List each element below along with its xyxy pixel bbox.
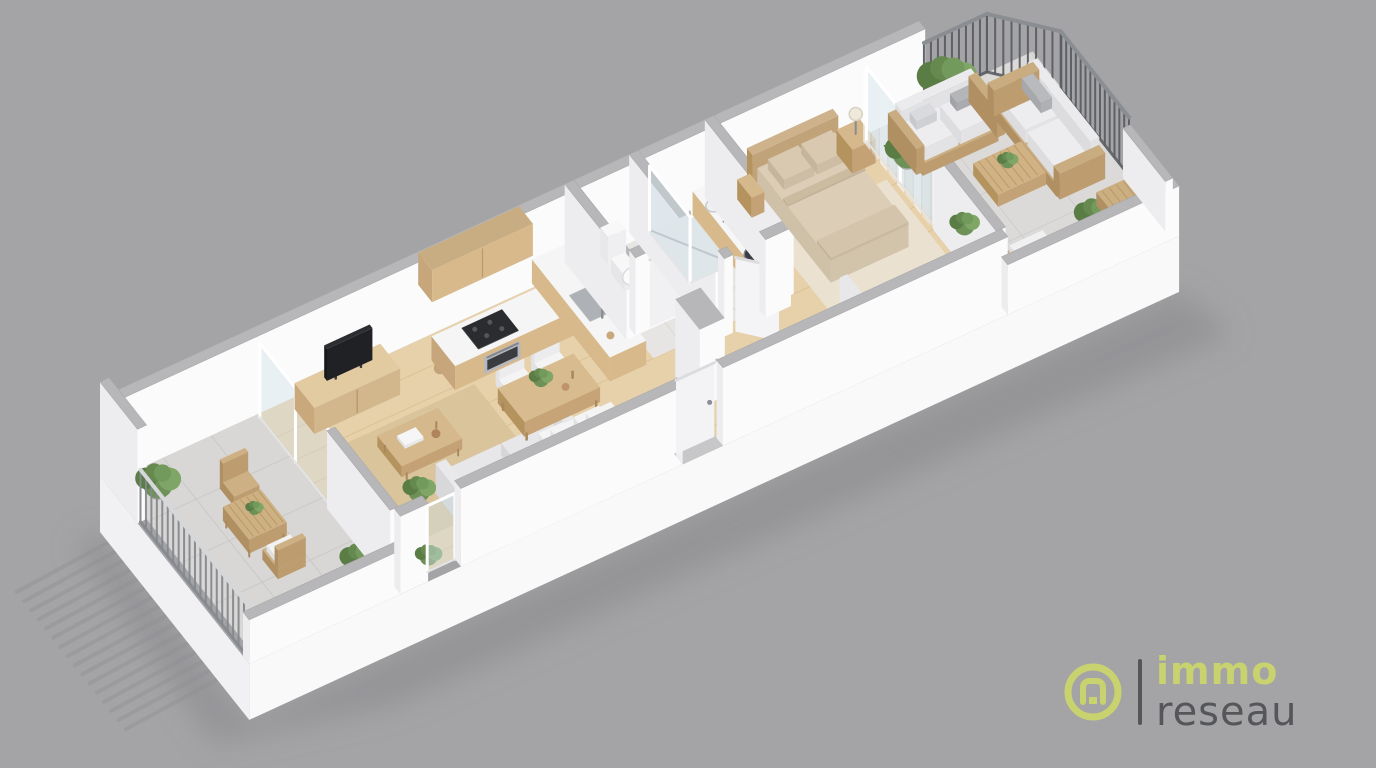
apartment-3d-floor-plan: immo reseau <box>0 0 1376 768</box>
floor-plan-render <box>0 0 1376 768</box>
